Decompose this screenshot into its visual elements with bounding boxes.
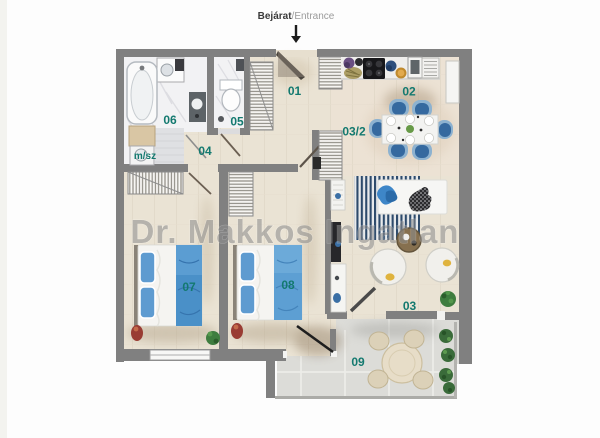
svg-text:m/sz: m/sz — [134, 151, 156, 162]
svg-text:02: 02 — [402, 85, 416, 99]
svg-text:03: 03 — [403, 299, 417, 313]
svg-text:08: 08 — [281, 278, 295, 292]
svg-text:04: 04 — [198, 144, 212, 158]
svg-text:09: 09 — [351, 355, 365, 369]
svg-text:03/2: 03/2 — [342, 125, 366, 139]
svg-text:Dr. Makkos Ingatlan: Dr. Makkos Ingatlan — [131, 213, 460, 250]
svg-text:06: 06 — [163, 113, 177, 127]
svg-text:01: 01 — [288, 84, 302, 98]
svg-text:07: 07 — [182, 280, 196, 294]
svg-text:05: 05 — [230, 115, 244, 129]
svg-text:Bejárat/Entrance: Bejárat/Entrance — [258, 11, 335, 22]
